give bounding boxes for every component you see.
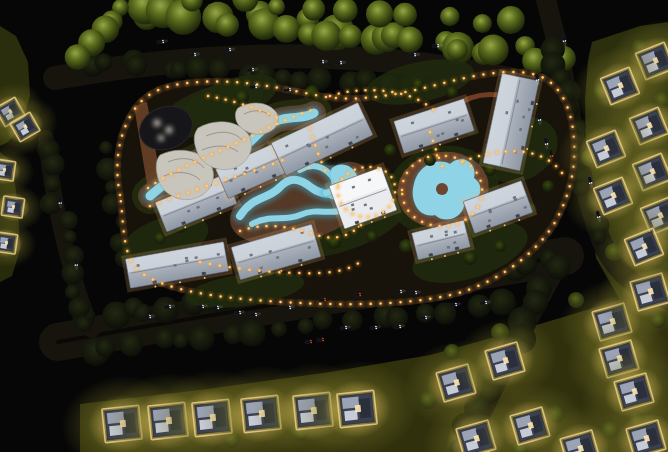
tree — [42, 153, 64, 175]
tree — [313, 310, 333, 330]
tree — [65, 44, 91, 70]
tree — [393, 3, 417, 27]
tree — [119, 332, 143, 356]
tree — [440, 7, 459, 26]
tree — [185, 55, 210, 80]
tree — [215, 13, 239, 37]
tree — [298, 318, 314, 334]
tree — [188, 325, 214, 351]
roof-unit — [173, 264, 176, 267]
tree — [238, 319, 265, 346]
dome-light — [158, 135, 164, 141]
villa-courtyard-light — [5, 241, 8, 245]
tree — [61, 262, 84, 285]
aerial-site-render — [0, 0, 668, 452]
tree — [153, 297, 179, 323]
tree — [366, 0, 393, 27]
tree — [311, 21, 341, 51]
villa-courtyard-light — [3, 168, 6, 172]
tree — [384, 144, 396, 156]
roof-unit — [185, 259, 188, 262]
masterplan-night-scene — [0, 0, 668, 452]
tree — [271, 321, 287, 337]
tree — [273, 15, 301, 43]
tree — [125, 55, 147, 77]
tree — [446, 86, 458, 98]
tree — [468, 294, 491, 317]
tree — [497, 6, 525, 34]
tree — [478, 35, 509, 66]
tree — [154, 328, 175, 349]
tree — [545, 254, 570, 279]
tree — [59, 211, 78, 230]
roof-unit — [217, 253, 220, 256]
villa-courtyard-light — [12, 205, 15, 209]
tree — [134, 304, 152, 322]
roof-unit — [185, 257, 188, 260]
tree — [44, 175, 61, 192]
tree — [40, 193, 62, 215]
dome-light — [154, 120, 161, 127]
tree — [173, 332, 189, 348]
tree — [473, 14, 492, 33]
tree — [209, 58, 230, 79]
tree — [494, 240, 506, 252]
tree — [76, 316, 92, 332]
tree — [447, 39, 468, 60]
pool-island — [436, 183, 448, 195]
tree — [99, 141, 112, 154]
tree — [95, 338, 115, 358]
tree — [366, 230, 378, 242]
tree — [542, 180, 554, 192]
villa-courtyard-light — [355, 405, 361, 413]
tree — [397, 26, 423, 52]
car-body — [74, 259, 78, 265]
tree — [463, 251, 477, 265]
tree — [339, 25, 362, 48]
dome-light — [166, 127, 173, 134]
tree — [170, 61, 188, 79]
car-body — [58, 197, 62, 203]
tree — [68, 297, 90, 319]
tree — [95, 53, 113, 71]
roof-unit — [194, 256, 197, 259]
tree — [63, 230, 77, 244]
tree — [416, 304, 435, 323]
